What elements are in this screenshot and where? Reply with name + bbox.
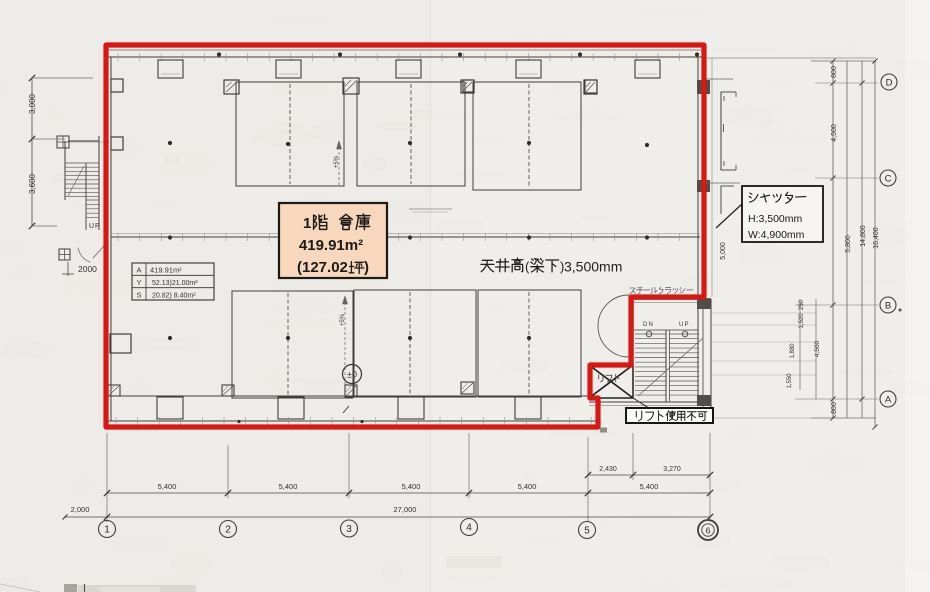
svg-text:Y: Y xyxy=(136,278,141,287)
svg-text:3: 3 xyxy=(346,524,352,535)
svg-text:5,800: 5,800 xyxy=(845,235,852,253)
svg-text:419.91m²: 419.91m² xyxy=(150,266,182,275)
svg-text:800: 800 xyxy=(831,66,838,78)
svg-text:2,430: 2,430 xyxy=(599,466,617,473)
svg-text:W:4,900mm: W:4,900mm xyxy=(748,229,805,241)
svg-text:16,400: 16,400 xyxy=(873,227,880,249)
svg-text:DN: DN xyxy=(643,322,654,328)
svg-text:4,500: 4,500 xyxy=(814,340,821,357)
svg-text:H:3,500mm: H:3,500mm xyxy=(748,213,803,225)
svg-text:52.13)21.00m²: 52.13)21.00m² xyxy=(152,280,198,287)
svg-text:6: 6 xyxy=(706,526,711,536)
svg-text:4,500: 4,500 xyxy=(831,124,838,142)
svg-text:250: 250 xyxy=(799,299,805,310)
svg-text:±0: ±0 xyxy=(347,370,357,380)
svg-text:27,000: 27,000 xyxy=(394,505,417,514)
svg-text:1: 1 xyxy=(303,215,311,232)
svg-text:20.82) 8.40m²: 20.82) 8.40m² xyxy=(152,293,196,300)
svg-text:5,400: 5,400 xyxy=(402,482,421,491)
svg-text:5,400: 5,400 xyxy=(279,482,298,491)
svg-text:4: 4 xyxy=(466,523,472,534)
svg-text:419.91m²: 419.91m² xyxy=(299,237,363,254)
svg-text:5: 5 xyxy=(584,526,590,537)
svg-text:5,400: 5,400 xyxy=(158,482,177,491)
svg-text:2: 2 xyxy=(225,525,231,536)
svg-text:D: D xyxy=(886,78,893,89)
svg-text:3,000: 3,000 xyxy=(28,93,37,114)
svg-text:800: 800 xyxy=(831,402,838,414)
svg-text:5,400: 5,400 xyxy=(518,482,537,491)
svg-text:3,500mm: 3,500mm xyxy=(564,259,622,275)
svg-text:UP: UP xyxy=(89,223,101,230)
svg-text:5,000: 5,000 xyxy=(720,242,727,260)
svg-text:1,880: 1,880 xyxy=(790,343,796,359)
svg-text:+5%: +5% xyxy=(340,313,346,326)
svg-text:(: ( xyxy=(525,259,530,274)
svg-text:): ) xyxy=(364,259,369,276)
svg-text:3,270: 3,270 xyxy=(663,466,681,473)
svg-text:(127.02: (127.02 xyxy=(297,259,348,276)
svg-text:2,000: 2,000 xyxy=(71,505,90,514)
svg-text:A: A xyxy=(136,266,141,275)
svg-text:1,520: 1,520 xyxy=(799,313,805,329)
svg-text:14,800: 14,800 xyxy=(860,225,867,247)
svg-text:1: 1 xyxy=(104,525,110,536)
svg-text:UP: UP xyxy=(679,322,690,328)
svg-text:+5%: +5% xyxy=(334,155,340,168)
svg-text:2000: 2000 xyxy=(78,264,97,274)
svg-text:S: S xyxy=(136,291,141,300)
svg-text:3,600: 3,600 xyxy=(28,173,37,194)
svg-text:B: B xyxy=(885,301,891,312)
svg-text:C: C xyxy=(885,174,892,185)
svg-text:A: A xyxy=(885,395,892,406)
svg-text:1,550: 1,550 xyxy=(787,373,793,389)
svg-text:5,400: 5,400 xyxy=(640,482,659,491)
